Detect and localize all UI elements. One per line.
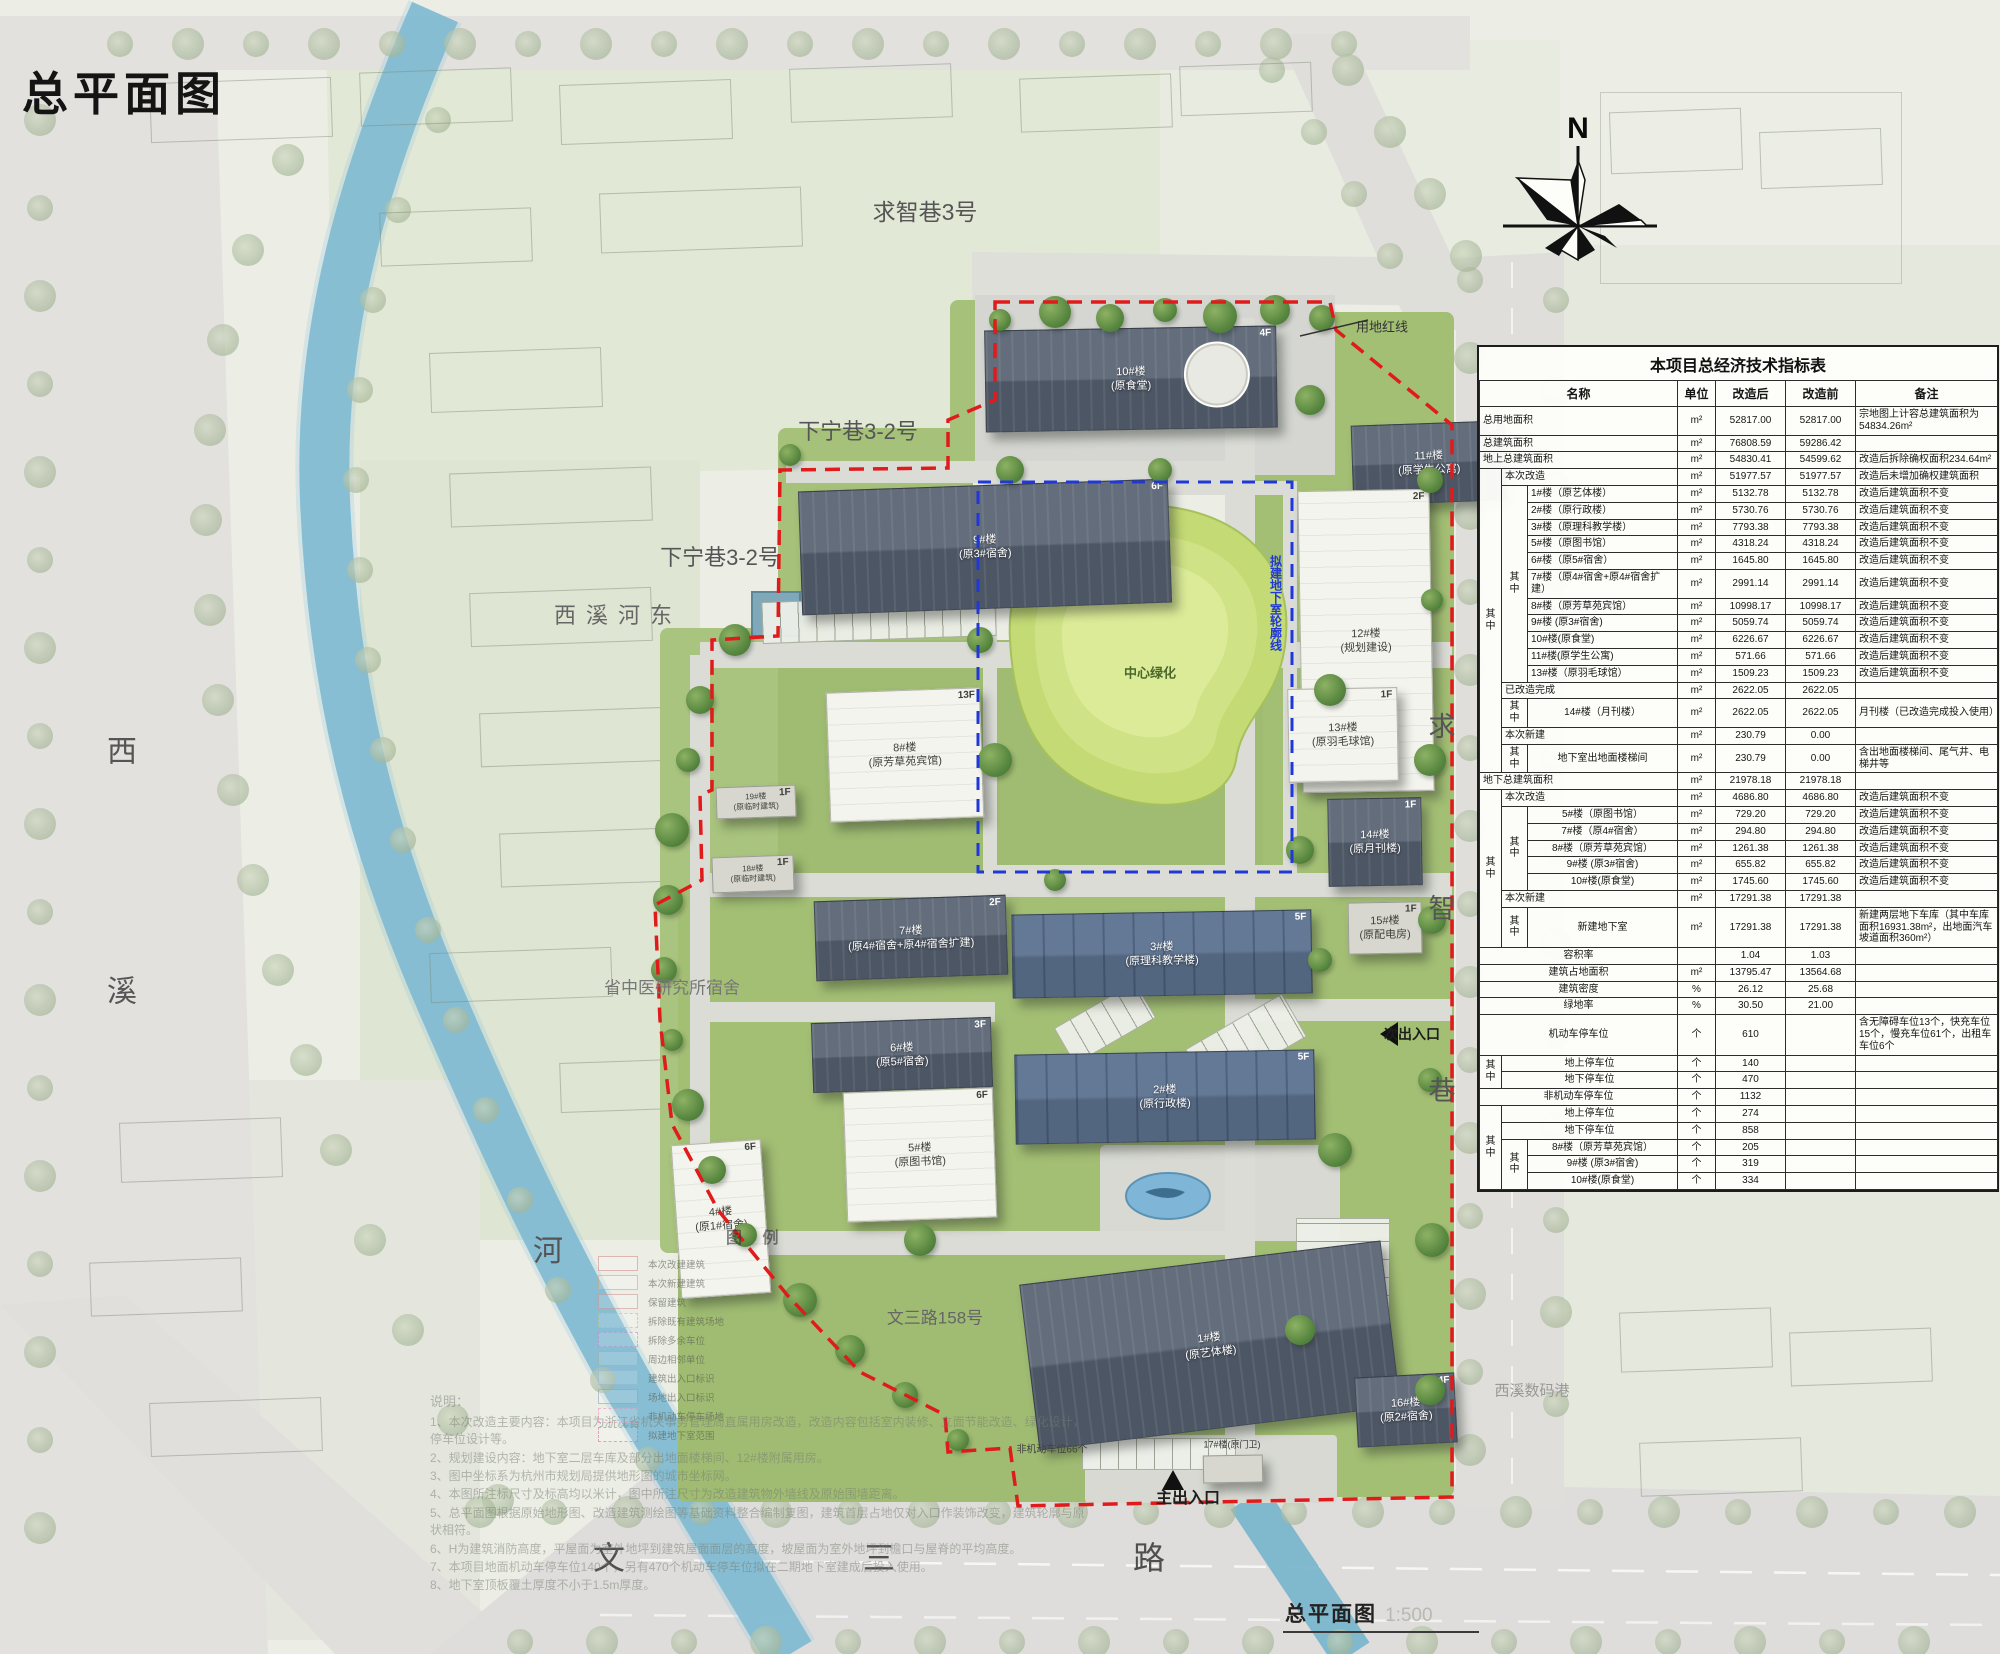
table-row: 其中地上停车位个274 — [1480, 1106, 1998, 1123]
table-cell: 地下室出地面楼梯间 — [1528, 744, 1678, 773]
table-cell: 76808.59 — [1716, 435, 1786, 452]
drawing-scale: 1:500 — [1385, 1605, 1433, 1626]
table-cell: 地下停车位 — [1502, 1072, 1678, 1089]
legend-label: 本次改建建筑 — [648, 1257, 705, 1271]
col-remark: 备注 — [1856, 381, 1998, 407]
legend-swatch — [598, 1332, 638, 1347]
table-cell: 5132.78 — [1786, 485, 1856, 502]
table-cell: 总建筑面积 — [1480, 435, 1678, 452]
table-cell: 个 — [1678, 1015, 1716, 1055]
map-label: 省中医研究所宿舍 — [604, 974, 740, 999]
table-cell: 1645.80 — [1786, 553, 1856, 570]
table-cell: 宗地图上计容总建筑面积为54834.26m² — [1856, 407, 1998, 436]
table-cell: 改造后建筑面积不变 — [1856, 632, 1998, 649]
table-row: 其中5#楼（原图书馆）m²729.20729.20改造后建筑面积不变 — [1480, 806, 1998, 823]
table-cell: 改造后建筑面积不变 — [1856, 615, 1998, 632]
map-label: 河 — [533, 1226, 563, 1270]
table-cell — [1856, 1173, 1998, 1190]
table-cell: m² — [1678, 648, 1716, 665]
table-cell — [1856, 998, 1998, 1015]
drawing-name: 总平面图 — [1285, 1603, 1377, 1626]
table-cell: 13564.68 — [1786, 964, 1856, 981]
table-cell: 改造后建筑面积不变 — [1856, 874, 1998, 891]
table-cell: 51977.57 — [1716, 469, 1786, 486]
table-cell: 9#楼 (原3#宿舍) — [1528, 857, 1678, 874]
table-cell: 机动车停车位 — [1480, 1015, 1678, 1055]
table-cell — [1856, 682, 1998, 699]
table-cell: 17291.38 — [1716, 907, 1786, 947]
table-cell: 个 — [1678, 1156, 1716, 1173]
table-cell: 2622.05 — [1716, 699, 1786, 728]
table-cell: 5#楼（原图书馆） — [1528, 806, 1678, 823]
table-row: 5#楼（原图书馆）m²4318.244318.24改造后建筑面积不变 — [1480, 536, 1998, 553]
map-label: 拟建地下室轮廓线 — [1268, 555, 1285, 651]
table-cell: 个 — [1678, 1122, 1716, 1139]
legend-swatch — [598, 1370, 638, 1385]
notes: 说明： 1、本次改造主要内容：本项目为浙江省机关事务管理局直属用房改造，改造内容… — [430, 1392, 1090, 1596]
legend-item: 保留建筑 — [598, 1294, 838, 1309]
table-cell: 2991.14 — [1716, 569, 1786, 598]
table-cell: 4686.80 — [1786, 790, 1856, 807]
table-cell: m² — [1678, 907, 1716, 947]
table-cell: 51977.57 — [1786, 469, 1856, 486]
table-cell — [1786, 1139, 1856, 1156]
table-cell: % — [1678, 998, 1716, 1015]
table-cell: m² — [1678, 485, 1716, 502]
table-cell: 月刊楼（已改造完成投入使用） — [1856, 699, 1998, 728]
table-cell: 改造后建筑面积不变 — [1856, 553, 1998, 570]
table-cell: m² — [1678, 890, 1716, 907]
table-cell: 858 — [1716, 1122, 1786, 1139]
table-cell: 4318.24 — [1786, 536, 1856, 553]
table-cell: 改造后建筑面积不变 — [1856, 569, 1998, 598]
legend-swatch — [598, 1256, 638, 1271]
table-title: 本项目总经济技术指标表 — [1479, 347, 1997, 380]
drawing-label: 总平面图1:500 — [1283, 1598, 1479, 1633]
table-cell — [1678, 948, 1716, 965]
indicator-table: 本项目总经济技术指标表 名称 单位 改造后 改造前 备注 总用地面积m²5281… — [1477, 345, 1999, 1192]
table-cell: 改造后建筑面积不变 — [1856, 502, 1998, 519]
table-row: 3#楼（原理科教学楼）m²7793.387793.38改造后建筑面积不变 — [1480, 519, 1998, 536]
table-cell: 54830.41 — [1716, 452, 1786, 469]
table-cell: 1#楼（原艺体楼） — [1528, 485, 1678, 502]
table-cell: 改造后建筑面积不变 — [1856, 485, 1998, 502]
table-cell: m² — [1678, 790, 1716, 807]
legend-item: 本次新建建筑 — [598, 1275, 838, 1290]
table-cell: 2622.05 — [1786, 699, 1856, 728]
map-label: 文三路158号 — [887, 1304, 983, 1329]
table-cell: 10#楼(原食堂) — [1528, 632, 1678, 649]
table-cell: 建筑占地面积 — [1480, 964, 1678, 981]
table-cell — [1856, 1072, 1998, 1089]
table-cell: m² — [1678, 964, 1716, 981]
table-cell: 21978.18 — [1786, 773, 1856, 790]
note-line: 2、规划建设内容：地下室二层车库及部分出地面楼梯间、12#楼附属用房。 — [430, 1450, 1090, 1467]
table-row: 10#楼(原食堂)m²6226.676226.67改造后建筑面积不变 — [1480, 632, 1998, 649]
table-cell: 9#楼 (原3#宿舍) — [1528, 1156, 1678, 1173]
table-cell: 2991.14 — [1786, 569, 1856, 598]
legend-label: 周边相邻单位 — [648, 1352, 705, 1366]
table-row: 其中1#楼（原艺体楼）m²5132.785132.78改造后建筑面积不变 — [1480, 485, 1998, 502]
table-cell — [1786, 1089, 1856, 1106]
table-cell: m² — [1678, 699, 1716, 728]
table-cell: m² — [1678, 874, 1716, 891]
legend-item: 拆除既有建筑场地 — [598, 1313, 838, 1328]
map-label: 中心绿化 — [1124, 663, 1176, 682]
table-cell: 改造后建筑面积不变 — [1856, 598, 1998, 615]
table-cell: 7793.38 — [1716, 519, 1786, 536]
table-cell — [1856, 1156, 1998, 1173]
table-cell: 已改造完成 — [1502, 682, 1678, 699]
table-cell: 总用地面积 — [1480, 407, 1678, 436]
table-cell: 52817.00 — [1716, 407, 1786, 436]
north-compass: N — [1495, 108, 1665, 283]
table-cell: 其中 — [1480, 1055, 1502, 1089]
table-row: 建筑占地面积m²13795.4713564.68 — [1480, 964, 1998, 981]
table-row: 绿地率%30.5021.00 — [1480, 998, 1998, 1015]
table-row: 建筑密度%26.1225.68 — [1480, 981, 1998, 998]
table-cell — [1786, 1055, 1856, 1072]
map-label: 用地红线 — [1356, 317, 1408, 336]
table-cell: 8#楼（原芳草苑宾馆） — [1528, 1139, 1678, 1156]
table-row: 7#楼（原4#宿舍+原4#宿舍扩建）m²2991.142991.14改造后建筑面… — [1480, 569, 1998, 598]
table-cell: 655.82 — [1786, 857, 1856, 874]
table-cell: 52817.00 — [1786, 407, 1856, 436]
table-cell: 319 — [1716, 1156, 1786, 1173]
table-row: 已改造完成m²2622.052622.05 — [1480, 682, 1998, 699]
note-line: 7、本项目地面机动车停车位140个，另有470个机动车停车位拟在二期地下室建成后… — [430, 1559, 1090, 1576]
table-cell — [1786, 1122, 1856, 1139]
table-cell — [1786, 1106, 1856, 1123]
note-line: 4、本图所注标尺寸及标高均以米计，图中所注尺寸为改造建筑物外墙线及原始围墙距离。 — [430, 1486, 1090, 1503]
table-cell: m² — [1678, 536, 1716, 553]
table-row: 机动车停车位个610含无障碍车位13个，快充车位15个，慢充车位61个，出租车车… — [1480, 1015, 1998, 1055]
table-cell — [1856, 1055, 1998, 1072]
table-cell: m² — [1678, 744, 1716, 773]
table-cell — [1786, 1173, 1856, 1190]
table-cell: 改造后建筑面积不变 — [1856, 823, 1998, 840]
table-cell: 17291.38 — [1786, 907, 1856, 947]
table-cell — [1856, 964, 1998, 981]
table-cell: 改造后建筑面积不变 — [1856, 519, 1998, 536]
legend-item: 拆除多余车位 — [598, 1332, 838, 1347]
table-cell: 21978.18 — [1716, 773, 1786, 790]
table-cell: 1745.60 — [1716, 874, 1786, 891]
table-cell: 地上总建筑面积 — [1480, 452, 1678, 469]
legend-label: 拆除既有建筑场地 — [648, 1314, 724, 1328]
table-cell: 1.04 — [1716, 948, 1786, 965]
legend-label: 本次新建建筑 — [648, 1276, 705, 1290]
table-cell: 6226.67 — [1716, 632, 1786, 649]
table-row: 6#楼（原5#宿舍）m²1645.801645.80改造后建筑面积不变 — [1480, 553, 1998, 570]
table-cell: 新建两层地下车库（其中车库面积16931.38m²，出地面汽车坡道面积360m²… — [1856, 907, 1998, 947]
table-cell — [1856, 435, 1998, 452]
note-line: 3、图中坐标系为杭州市规划局提供地形图的城市坐标网。 — [430, 1468, 1090, 1485]
table-cell: 5730.76 — [1786, 502, 1856, 519]
table-cell: 10998.17 — [1786, 598, 1856, 615]
table-cell: 其中 — [1480, 469, 1502, 773]
table-cell — [1856, 981, 1998, 998]
table-cell: 25.68 — [1786, 981, 1856, 998]
table-cell: 含出地面楼梯间、尾气井、电梯井等 — [1856, 744, 1998, 773]
indicator-table-grid: 名称 单位 改造后 改造前 备注 总用地面积m²52817.0052817.00… — [1479, 380, 1998, 1190]
table-cell: 本次新建 — [1502, 890, 1678, 907]
table-cell: 294.80 — [1716, 823, 1786, 840]
table-cell: 7793.38 — [1786, 519, 1856, 536]
table-row: 2#楼（原行政楼）m²5730.765730.76改造后建筑面积不变 — [1480, 502, 1998, 519]
map-label: 下宁巷3-2号 — [798, 414, 918, 446]
table-row: 8#楼（原芳草苑宾馆）m²10998.1710998.17改造后建筑面积不变 — [1480, 598, 1998, 615]
table-row: 7#楼（原4#宿舍）m²294.80294.80改造后建筑面积不变 — [1480, 823, 1998, 840]
table-cell: 274 — [1716, 1106, 1786, 1123]
map-label: 西溪河东 — [554, 598, 682, 630]
table-cell: % — [1678, 981, 1716, 998]
table-cell: 2622.05 — [1716, 682, 1786, 699]
table-row: 其中本次改造m²4686.804686.80改造后建筑面积不变 — [1480, 790, 1998, 807]
table-cell: 54599.62 — [1786, 452, 1856, 469]
map-label: 西溪数码港 — [1494, 1380, 1569, 1401]
table-cell: 改造后建筑面积不变 — [1856, 840, 1998, 857]
site-plan-sheet: 10#楼 (原食堂)4F11#楼 (原学生公寓)2F12#楼 (规划建设)2F9… — [0, 0, 2000, 1654]
col-name: 名称 — [1480, 381, 1678, 407]
table-cell: 10#楼(原食堂) — [1528, 1173, 1678, 1190]
map-label: 下宁巷3-2号 — [660, 540, 780, 572]
table-cell: m² — [1678, 615, 1716, 632]
col-unit: 单位 — [1678, 381, 1716, 407]
table-cell: 59286.42 — [1786, 435, 1856, 452]
table-cell: 本次改造 — [1502, 790, 1678, 807]
table-cell: 5059.74 — [1716, 615, 1786, 632]
table-cell: m² — [1678, 682, 1716, 699]
table-cell — [1786, 1156, 1856, 1173]
table-cell: 2622.05 — [1786, 682, 1856, 699]
table-cell: 334 — [1716, 1173, 1786, 1190]
table-row: 其中本次改造m²51977.5751977.57改造后未增加确权建筑面积 — [1480, 469, 1998, 486]
legend-label: 建筑出入口标识 — [648, 1371, 715, 1385]
table-cell — [1856, 1106, 1998, 1123]
table-cell — [1856, 1089, 1998, 1106]
table-cell: m² — [1678, 502, 1716, 519]
table-cell: m² — [1678, 407, 1716, 436]
table-cell: 205 — [1716, 1139, 1786, 1156]
table-cell: 个 — [1678, 1173, 1716, 1190]
table-cell: 1132 — [1716, 1089, 1786, 1106]
legend-label: 拆除多余车位 — [648, 1333, 705, 1347]
table-row: 非机动车停车位个1132 — [1480, 1089, 1998, 1106]
table-row: 11#楼(原学生公寓)m²571.66571.66改造后建筑面积不变 — [1480, 648, 1998, 665]
table-cell: 改造后未增加确权建筑面积 — [1856, 469, 1998, 486]
map-label: 17#楼(原门卫) — [1203, 1438, 1260, 1451]
table-cell: 改造后建筑面积不变 — [1856, 536, 1998, 553]
table-cell: 其中 — [1502, 744, 1528, 773]
table-cell: 地下停车位 — [1502, 1122, 1678, 1139]
table-cell: 改造后建筑面积不变 — [1856, 806, 1998, 823]
map-label: 求智巷3号 — [873, 193, 978, 227]
table-cell: m² — [1678, 452, 1716, 469]
table-row: 总建筑面积m²76808.5959286.42 — [1480, 435, 1998, 452]
table-cell: 1645.80 — [1716, 553, 1786, 570]
table-row: 其中新建地下室m²17291.3817291.38新建两层地下车库（其中车库面积… — [1480, 907, 1998, 947]
note-line: 6、H为建筑消防高度，平屋面为室外地坪到建筑屋面面层的高度，坡屋面为室外地坪到檐… — [430, 1541, 1090, 1558]
table-cell: 其中 — [1502, 1139, 1528, 1189]
note-line: 5、总平面图根据原始地形图、改造建筑测绘图等基础资料整合编制复图，建筑首层占地仅… — [430, 1505, 1090, 1540]
table-cell: 1261.38 — [1786, 840, 1856, 857]
table-cell: 地上停车位 — [1502, 1106, 1678, 1123]
table-cell: 非机动车停车位 — [1480, 1089, 1678, 1106]
table-row: 其中地下室出地面楼梯间m²230.790.00含出地面楼梯间、尾气井、电梯井等 — [1480, 744, 1998, 773]
table-cell: m² — [1678, 665, 1716, 682]
table-cell: 140 — [1716, 1055, 1786, 1072]
table-cell: 0.00 — [1786, 727, 1856, 744]
table-cell — [1856, 773, 1998, 790]
table-cell: 26.12 — [1716, 981, 1786, 998]
table-cell: m² — [1678, 519, 1716, 536]
table-cell: 571.66 — [1716, 648, 1786, 665]
table-cell: m² — [1678, 469, 1716, 486]
legend-label: 保留建筑 — [648, 1295, 686, 1309]
table-cell: 17291.38 — [1786, 890, 1856, 907]
table-row: 其中8#楼（原芳草苑宾馆）个205 — [1480, 1139, 1998, 1156]
table-cell: 4686.80 — [1716, 790, 1786, 807]
table-cell: 610 — [1716, 1015, 1786, 1055]
table-cell: 容积率 — [1480, 948, 1678, 965]
table-row: 地下停车位个470 — [1480, 1072, 1998, 1089]
table-row: 13#楼（原羽毛球馆）m²1509.231509.23改造后建筑面积不变 — [1480, 665, 1998, 682]
table-cell: 改造后建筑面积不变 — [1856, 648, 1998, 665]
table-row: 总用地面积m²52817.0052817.00宗地图上计容总建筑面积为54834… — [1480, 407, 1998, 436]
legend-swatch — [598, 1275, 638, 1290]
table-cell — [1856, 948, 1998, 965]
map-label: 西溪 — [96, 735, 140, 1215]
table-header-row: 名称 单位 改造后 改造前 备注 — [1480, 381, 1998, 407]
table-cell: 1509.23 — [1716, 665, 1786, 682]
legend-swatch — [598, 1294, 638, 1309]
table-cell: 571.66 — [1786, 648, 1856, 665]
table-cell: 地上停车位 — [1502, 1055, 1678, 1072]
table-cell: 10#楼(原食堂) — [1528, 874, 1678, 891]
col-after: 改造后 — [1716, 381, 1786, 407]
table-row: 地下总建筑面积m²21978.1821978.18 — [1480, 773, 1998, 790]
table-cell: m² — [1678, 840, 1716, 857]
table-cell: 其中 — [1502, 907, 1528, 947]
table-cell: 本次改造 — [1502, 469, 1678, 486]
table-cell: m² — [1678, 553, 1716, 570]
table-cell: 新建地下室 — [1528, 907, 1678, 947]
table-cell: 21.00 — [1786, 998, 1856, 1015]
legend-swatch — [598, 1313, 638, 1328]
table-cell: 13#楼（原羽毛球馆） — [1528, 665, 1678, 682]
table-cell: 个 — [1678, 1106, 1716, 1123]
table-row: 9#楼 (原3#宿舍)m²5059.745059.74改造后建筑面积不变 — [1480, 615, 1998, 632]
table-cell: 5730.76 — [1716, 502, 1786, 519]
notes-heading: 说明： — [430, 1393, 1090, 1412]
table-cell: 14#楼（月刊楼） — [1528, 699, 1678, 728]
table-row: 8#楼（原芳草苑宾馆）m²1261.381261.38改造后建筑面积不变 — [1480, 840, 1998, 857]
table-cell: 其中 — [1502, 485, 1528, 682]
table-cell: 30.50 — [1716, 998, 1786, 1015]
table-cell — [1856, 890, 1998, 907]
table-cell: 本次新建 — [1502, 727, 1678, 744]
table-cell: 17291.38 — [1716, 890, 1786, 907]
table-cell: 5132.78 — [1716, 485, 1786, 502]
table-row: 10#楼(原食堂)m²1745.601745.60改造后建筑面积不变 — [1480, 874, 1998, 891]
table-cell: 5#楼（原图书馆） — [1528, 536, 1678, 553]
north-letter: N — [1567, 112, 1589, 145]
table-cell: m² — [1678, 569, 1716, 598]
table-cell: 470 — [1716, 1072, 1786, 1089]
table-row: 9#楼 (原3#宿舍)m²655.82655.82改造后建筑面积不变 — [1480, 857, 1998, 874]
table-cell: 6226.67 — [1786, 632, 1856, 649]
table-cell: m² — [1678, 727, 1716, 744]
table-cell: 729.20 — [1716, 806, 1786, 823]
table-cell: 8#楼（原芳草苑宾馆） — [1528, 598, 1678, 615]
table-cell: 改造后建筑面积不变 — [1856, 665, 1998, 682]
table-row: 地下停车位个858 — [1480, 1122, 1998, 1139]
legend-item: 建筑出入口标识 — [598, 1370, 838, 1385]
table-cell: m² — [1678, 773, 1716, 790]
table-cell: 1509.23 — [1786, 665, 1856, 682]
table-cell: 改造后建筑面积不变 — [1856, 790, 1998, 807]
table-cell: 个 — [1678, 1139, 1716, 1156]
table-cell: 地下总建筑面积 — [1480, 773, 1678, 790]
table-cell — [1856, 1139, 1998, 1156]
table-cell — [1856, 727, 1998, 744]
table-cell: 13795.47 — [1716, 964, 1786, 981]
table-cell: 7#楼（原4#宿舍） — [1528, 823, 1678, 840]
table-cell: 含无障碍车位13个，快充车位15个，慢充车位61个，出租车车位6个 — [1856, 1015, 1998, 1055]
table-cell: 0.00 — [1786, 744, 1856, 773]
table-cell: 其中 — [1502, 699, 1528, 728]
table-cell: 655.82 — [1716, 857, 1786, 874]
table-cell: m² — [1678, 823, 1716, 840]
table-cell: 其中 — [1480, 1106, 1502, 1190]
table-cell: 6#楼（原5#宿舍） — [1528, 553, 1678, 570]
table-cell: 230.79 — [1716, 744, 1786, 773]
table-cell: 建筑密度 — [1480, 981, 1678, 998]
table-cell: 294.80 — [1786, 823, 1856, 840]
table-cell: 10998.17 — [1716, 598, 1786, 615]
legend-swatch — [598, 1351, 638, 1366]
map-label: 主出入口 — [1156, 1484, 1220, 1508]
table-row: 地上总建筑面积m²54830.4154599.62改造后拆除确权面积234.64… — [1480, 452, 1998, 469]
table-cell: 4318.24 — [1716, 536, 1786, 553]
table-cell: 9#楼 (原3#宿舍) — [1528, 615, 1678, 632]
table-cell: 1745.60 — [1786, 874, 1856, 891]
table-cell — [1786, 1072, 1856, 1089]
table-cell: 其中 — [1502, 806, 1528, 890]
table-cell: m² — [1678, 632, 1716, 649]
table-cell: m² — [1678, 806, 1716, 823]
note-line: 8、地下室顶板覆土厚度不小于1.5m厚度。 — [430, 1577, 1090, 1594]
legend-item: 本次改建建筑 — [598, 1256, 838, 1271]
table-cell: 个 — [1678, 1089, 1716, 1106]
map-label: 求智巷 — [1421, 712, 1460, 1258]
table-cell: m² — [1678, 857, 1716, 874]
table-cell: m² — [1678, 598, 1716, 615]
table-row: 9#楼 (原3#宿舍)个319 — [1480, 1156, 1998, 1173]
legend-title: 图 例 — [726, 1224, 838, 1248]
note-line: 1、本次改造主要内容：本项目为浙江省机关事务管理局直属用房改造，改造内容包括室内… — [430, 1414, 1090, 1449]
table-cell: 2#楼（原行政楼） — [1528, 502, 1678, 519]
table-cell: 1.03 — [1786, 948, 1856, 965]
table-row: 其中14#楼（月刊楼）m²2622.052622.05月刊楼（已改造完成投入使用… — [1480, 699, 1998, 728]
table-cell: m² — [1678, 435, 1716, 452]
table-cell: 个 — [1678, 1072, 1716, 1089]
table-cell: 1261.38 — [1716, 840, 1786, 857]
table-cell: 729.20 — [1786, 806, 1856, 823]
col-before: 改造前 — [1786, 381, 1856, 407]
table-cell: 3#楼（原理科教学楼） — [1528, 519, 1678, 536]
